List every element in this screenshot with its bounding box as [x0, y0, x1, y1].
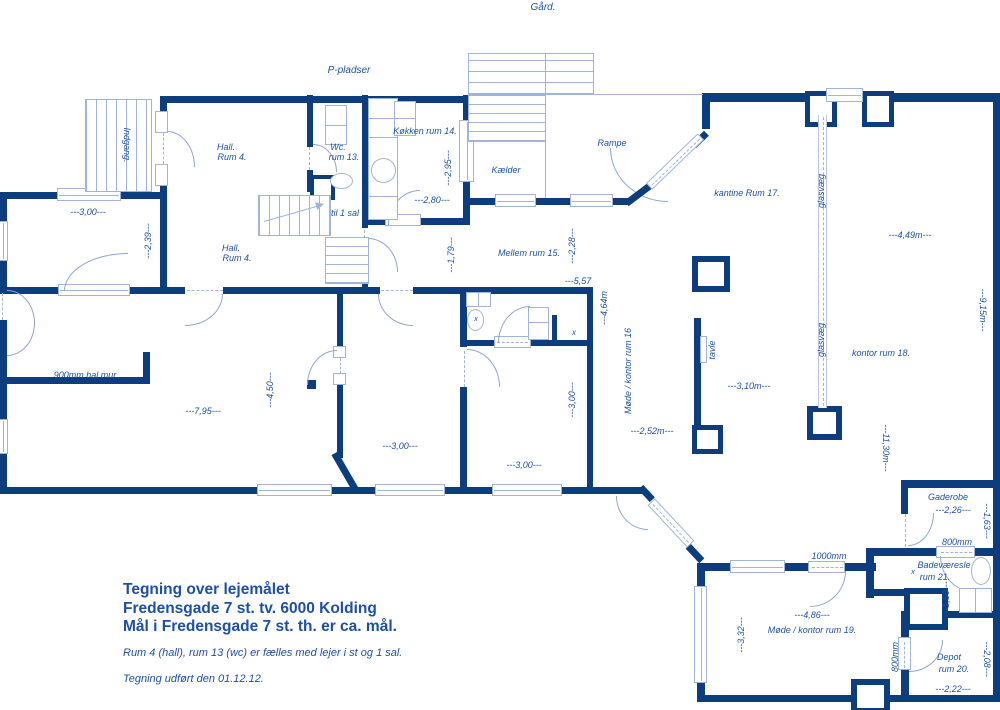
fixture-line	[528, 322, 549, 323]
stairs	[468, 95, 546, 142]
dim-2-08: ---2,08---	[982, 641, 992, 677]
wall	[697, 681, 705, 702]
dim-2-22: ---2,22---	[935, 684, 971, 694]
fixture-line	[478, 292, 479, 307]
door-dash	[340, 358, 341, 374]
fixture	[528, 307, 549, 340]
label-moede-kontor-rum16: Møde / kontor rum 16	[623, 328, 633, 414]
door-frame	[155, 164, 168, 186]
label-gaard: Gård.	[530, 3, 555, 13]
label-badevaeresle: Badeværesle	[917, 560, 970, 570]
dim-800mm-depot: 800mm	[890, 642, 900, 672]
wall	[463, 340, 495, 346]
door-dash	[187, 290, 223, 291]
dim-2-95: ---2,95---	[443, 150, 453, 186]
window-centerline	[828, 95, 861, 96]
label-til-1-sal: til 1 sal	[331, 208, 359, 218]
dim-2-52: ---2,52m---	[631, 426, 674, 436]
door-arc	[7, 323, 35, 356]
wall	[0, 192, 7, 223]
door-arc	[368, 238, 398, 272]
dim-1-79: ---1,79---	[446, 237, 456, 273]
label-kontor-rum18: kontor rum 18.	[852, 348, 910, 358]
door-arc	[616, 496, 648, 530]
dim-800mm-bad: 800mm	[942, 537, 972, 547]
label-depot-1: Depot	[937, 652, 961, 662]
door-dash	[381, 290, 413, 291]
dim-2-80: ---2,80---	[414, 195, 450, 205]
door-arc	[185, 294, 223, 326]
thin-line	[545, 53, 546, 198]
dim-4-49: ---4,49m---	[889, 230, 932, 240]
dim-3-32: ---3,32---	[736, 617, 746, 653]
title-note-2: Tegning udført den 01.12.12.	[123, 673, 402, 685]
fixture	[371, 158, 396, 183]
door-arc	[167, 131, 195, 167]
dim-7-95: ---7,95---	[185, 406, 221, 416]
door-arc	[467, 349, 500, 387]
door-dash	[2, 293, 3, 320]
title-line-2: Fredensgade 7 st. tv. 6000 Kolding	[123, 600, 402, 619]
window-centerline	[377, 490, 443, 491]
door-arc	[810, 571, 846, 607]
wall	[971, 548, 1000, 556]
glass-wall	[818, 115, 827, 408]
fixture-line	[325, 125, 347, 126]
door-arc	[498, 306, 530, 343]
label-p-pladser: P-pladser	[328, 66, 371, 76]
dim-1000mm: 1000mm	[811, 551, 846, 561]
window-centerline	[59, 195, 119, 196]
window-centerline	[259, 490, 330, 491]
pillar	[692, 256, 730, 292]
mark-x-toilet: x	[474, 315, 478, 325]
window	[0, 221, 8, 261]
floor-plan: Tegning over lejemålet Fredensgade 7 st.…	[0, 0, 1000, 710]
door-dash	[904, 642, 905, 668]
pillar	[862, 91, 894, 127]
wall	[843, 563, 876, 571]
ramp-band	[648, 498, 695, 547]
wall	[0, 320, 7, 419]
pillar	[807, 406, 842, 440]
dim-9-15: ---9,15m---	[978, 289, 988, 332]
label-kaelder: Kælder	[491, 165, 520, 175]
dim-3-00-left: ---3,00---	[70, 207, 106, 217]
door-frame	[155, 111, 168, 133]
wall	[223, 287, 380, 294]
dim-11-30: ---11,30m---	[881, 424, 891, 471]
dim-5-57: ---5,57	[565, 276, 592, 286]
dim-1-50: ---1,50---	[941, 581, 951, 617]
mark-x-wall: x	[572, 328, 576, 338]
door-dash	[812, 567, 843, 568]
window	[0, 419, 8, 454]
label-indgang: Indgang.	[122, 127, 132, 162]
wall	[884, 93, 1000, 102]
dim-2-26: ---2,26---	[935, 505, 971, 515]
wall	[337, 293, 343, 353]
wall	[587, 287, 593, 487]
door-arc	[64, 253, 128, 291]
wall	[160, 199, 167, 287]
label-glasvaeg-1: glasvæg	[816, 174, 826, 208]
label-hall-rum4-mid-2: Rum 4.	[222, 253, 251, 263]
thin-line	[545, 94, 703, 95]
pillar	[692, 425, 723, 454]
wall	[533, 198, 572, 205]
fixture-line	[368, 196, 398, 197]
window-centerline	[701, 588, 702, 681]
door-arc	[7, 290, 35, 323]
wall	[784, 563, 810, 571]
label-hall-rum4-mid-1: Hall.	[222, 243, 240, 253]
window-centerline	[732, 567, 783, 568]
window-centerline	[3, 223, 4, 259]
door-dash	[941, 552, 972, 553]
stairs	[325, 237, 369, 284]
fixture	[330, 173, 353, 189]
wall	[443, 487, 494, 494]
wall-diagonal	[331, 451, 358, 491]
wall	[0, 192, 58, 199]
dim-2-28: ---2,28---	[567, 228, 577, 264]
title-note-1: Rum 4 (hall), rum 13 (wc) er fælles med …	[123, 647, 402, 659]
wall	[560, 487, 643, 494]
wall	[160, 96, 470, 103]
dim-900mm-hal-mur: 900mm hal mur	[54, 370, 117, 380]
label-kantine-rum17: kantine Rum 17.	[714, 188, 780, 198]
door-arc	[908, 513, 934, 546]
wall	[120, 192, 163, 199]
dim-1-63: ---1,63---	[982, 503, 992, 539]
wall	[528, 340, 593, 346]
door-dash	[905, 514, 906, 547]
label-hall-rum4-top-2: Rum 4.	[217, 152, 246, 162]
pillar	[851, 679, 890, 710]
window-centerline	[494, 490, 560, 491]
dim-3-00-v: ---3,00---	[567, 382, 577, 418]
wall	[694, 318, 701, 428]
window-centerline	[572, 201, 611, 202]
label-depot-2: rum 20.	[939, 664, 970, 674]
label-rampe: Rampe	[597, 138, 626, 148]
label-tavle: tavle	[707, 340, 717, 359]
stairs	[468, 53, 594, 95]
wall	[901, 480, 908, 514]
label-hall-rum4-top-1: Hall.	[217, 142, 235, 152]
fixture	[971, 557, 991, 585]
door-arc	[307, 350, 337, 385]
wall	[460, 387, 467, 487]
fixture-line	[394, 118, 416, 119]
label-gaderobe: Gaderobe	[928, 492, 968, 502]
wall	[0, 487, 257, 494]
label-glasvaeg-2: glasvæg	[816, 323, 826, 357]
title-line-1: Tegning over lejemålet	[123, 581, 402, 600]
dim-3-00-b: ---3,00---	[506, 460, 542, 470]
title-block: Tegning over lejemålet Fredensgade 7 st.…	[123, 581, 402, 685]
window-centerline	[497, 201, 534, 202]
label-moede-kontor-rum19: Møde / kontor rum 19.	[768, 625, 857, 635]
label-wc-2: rum 13.	[329, 152, 360, 162]
wall	[702, 93, 808, 102]
wall	[552, 315, 557, 343]
wall	[901, 480, 1000, 488]
label-mellem-rum15: Mellem rum 15.	[498, 248, 560, 258]
wall	[419, 218, 467, 225]
wall	[413, 287, 593, 294]
door-dash	[163, 133, 164, 164]
wall	[697, 695, 1000, 702]
door-dash	[464, 351, 465, 387]
title-line-3: Mål i Fredensgade 7 st. th. er ca. mål.	[123, 618, 402, 637]
dim-4-50: ---4,50---	[265, 372, 275, 408]
fixture-line	[975, 588, 976, 613]
dim-4-64: ---4,64m	[599, 291, 609, 325]
door-arc	[378, 294, 413, 326]
wall	[128, 287, 185, 294]
door-dash	[309, 147, 310, 170]
dim-2-39: ---2,39---	[143, 223, 153, 259]
dim-3-10: ---3,10m---	[728, 381, 771, 391]
stairs	[85, 99, 152, 192]
label-koekken: Køkken rum 14.	[393, 126, 457, 136]
window-centerline	[3, 421, 4, 452]
dim-3-00-a: ---3,00---	[382, 441, 418, 451]
fixture	[700, 336, 707, 363]
wall	[866, 548, 938, 556]
wall	[467, 198, 497, 205]
wall	[337, 385, 343, 458]
label-wc-1: Wc.	[330, 142, 346, 152]
dim-4-86: ---4,86---	[794, 610, 830, 620]
wall	[307, 95, 313, 147]
mark-x-bad: x	[911, 568, 915, 578]
fixture-line	[368, 137, 398, 138]
